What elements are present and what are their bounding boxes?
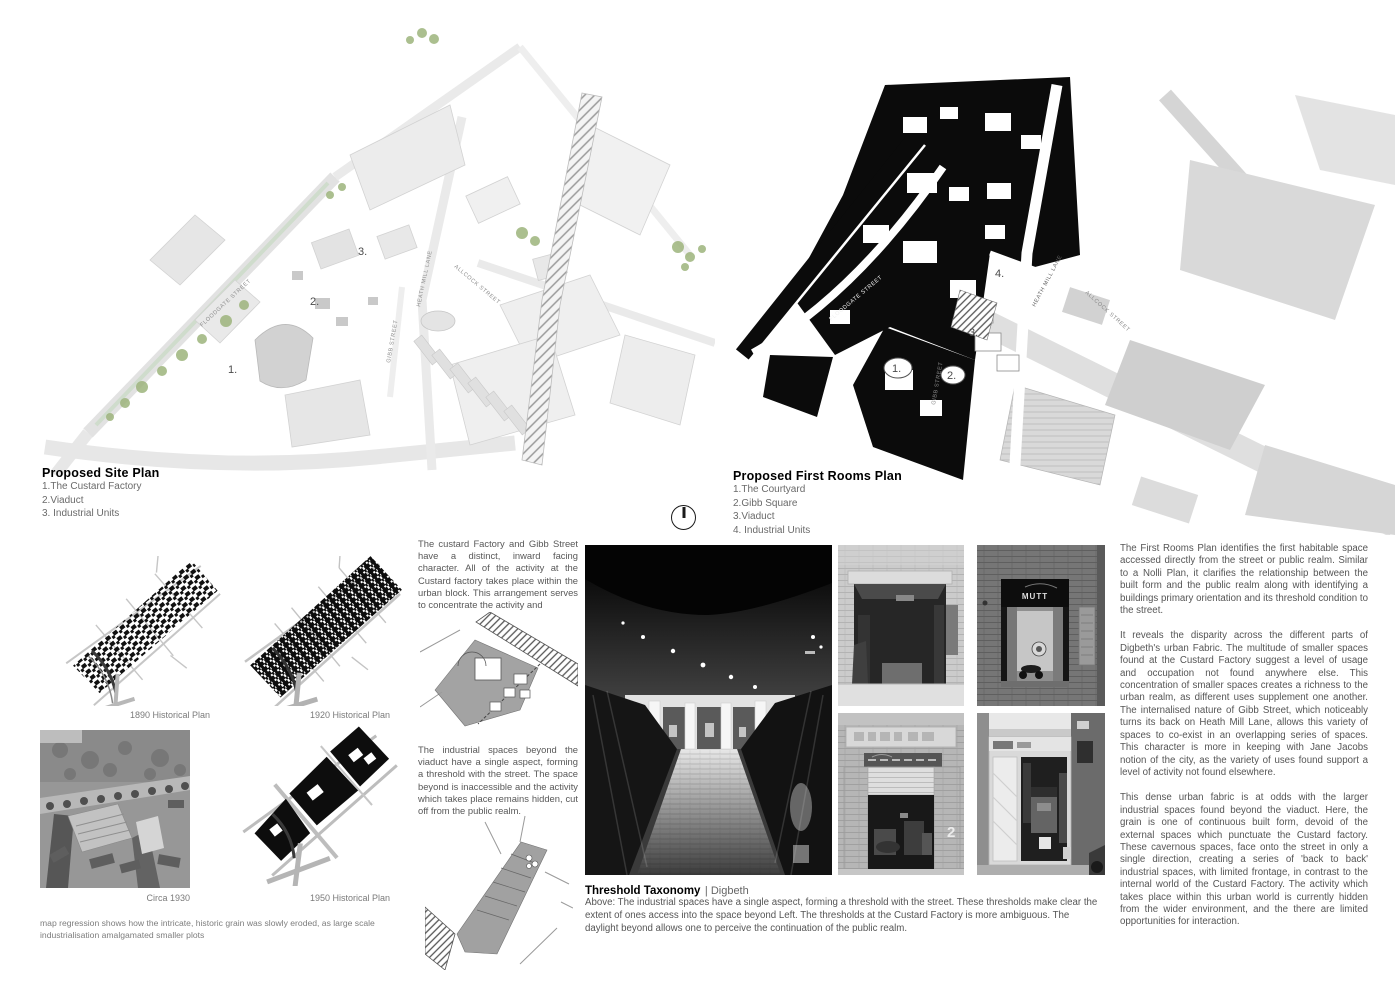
label-1920: 1920 Historical Plan [280, 710, 420, 720]
unit-number-text: 2 [947, 824, 955, 841]
legend-item: 4. Industrial Units [733, 524, 953, 538]
threshold-photo-garage: 2 [838, 713, 964, 875]
analysis-text-column: The First Rooms Plan identifies the firs… [1120, 543, 1368, 942]
first-rooms-legend: Proposed First Rooms Plan 1.The Courtyar… [733, 469, 953, 537]
threshold-photo-brick-passage [838, 545, 964, 706]
industrial-note: The industrial spaces beyond the viaduct… [418, 744, 578, 817]
historical-plan-1950 [238, 724, 413, 886]
historical-plan-1890 [55, 556, 235, 706]
threshold-photo-open-unit [977, 713, 1105, 875]
threshold-caption: Above: The industrial spaces have a sing… [585, 896, 1100, 936]
legend-item: 1.The Custard Factory [42, 480, 262, 494]
legend-item: 3.Viaduct [733, 510, 953, 524]
label-1890: 1890 Historical Plan [100, 710, 240, 720]
fr-marker-4: 4. [995, 268, 1004, 280]
legend-item: 2.Gibb Square [733, 497, 953, 511]
north-arrow-icon [671, 505, 696, 530]
map-regression-caption: map regression shows how the intricate, … [40, 918, 435, 941]
label-1950: 1950 Historical Plan [280, 893, 420, 903]
legend-item: 1.The Courtyard [733, 483, 953, 497]
fr-marker-3: 3. [969, 327, 978, 339]
fr-marker-2: 2. [947, 370, 956, 382]
historical-plan-1920 [235, 556, 415, 706]
analysis-para-2: It reveals the disparity across the diff… [1120, 630, 1368, 779]
threshold-photo-mutt-arch: MUTT [977, 545, 1105, 706]
threshold-plan-drawing-1 [420, 612, 578, 734]
analysis-para-3: This dense urban fabric is at odds with … [1120, 792, 1368, 928]
custard-note: The custard Factory and Gibb Street have… [418, 538, 578, 611]
aerial-photo-1930 [40, 730, 190, 888]
first-rooms-title: Proposed First Rooms Plan [733, 469, 953, 483]
legend-item: 3. Industrial Units [42, 507, 262, 521]
mutt-sign-text: MUTT [1022, 592, 1048, 601]
legend-item: 2.Viaduct [42, 494, 262, 508]
site-plan-title: Proposed Site Plan [42, 466, 262, 480]
site-marker-2: 2. [310, 296, 319, 308]
presentation-board: 1. 2. 3. FLOODGATE STREET HEATH MILL LAN… [0, 0, 1400, 990]
site-marker-1: 1. [228, 364, 237, 376]
analysis-para-1: The First Rooms Plan identifies the firs… [1120, 543, 1368, 617]
reflection-figure [790, 783, 812, 831]
label-1930: Circa 1930 [40, 893, 190, 903]
site-marker-3: 3. [358, 246, 367, 258]
custard-factory-building [255, 324, 313, 387]
site-plan-legend: Proposed Site Plan 1.The Custard Factory… [42, 466, 262, 521]
fr-marker-1: 1. [892, 363, 901, 375]
threshold-interior-photo [585, 545, 832, 875]
first-rooms-map: 1. 2. 3. 4. FLOODGATE STREET HEATH MILL … [735, 55, 1395, 535]
threshold-plan-drawing-2 [425, 812, 573, 970]
site-plan-map: 1. 2. 3. FLOODGATE STREET HEATH MILL LAN… [30, 5, 715, 475]
